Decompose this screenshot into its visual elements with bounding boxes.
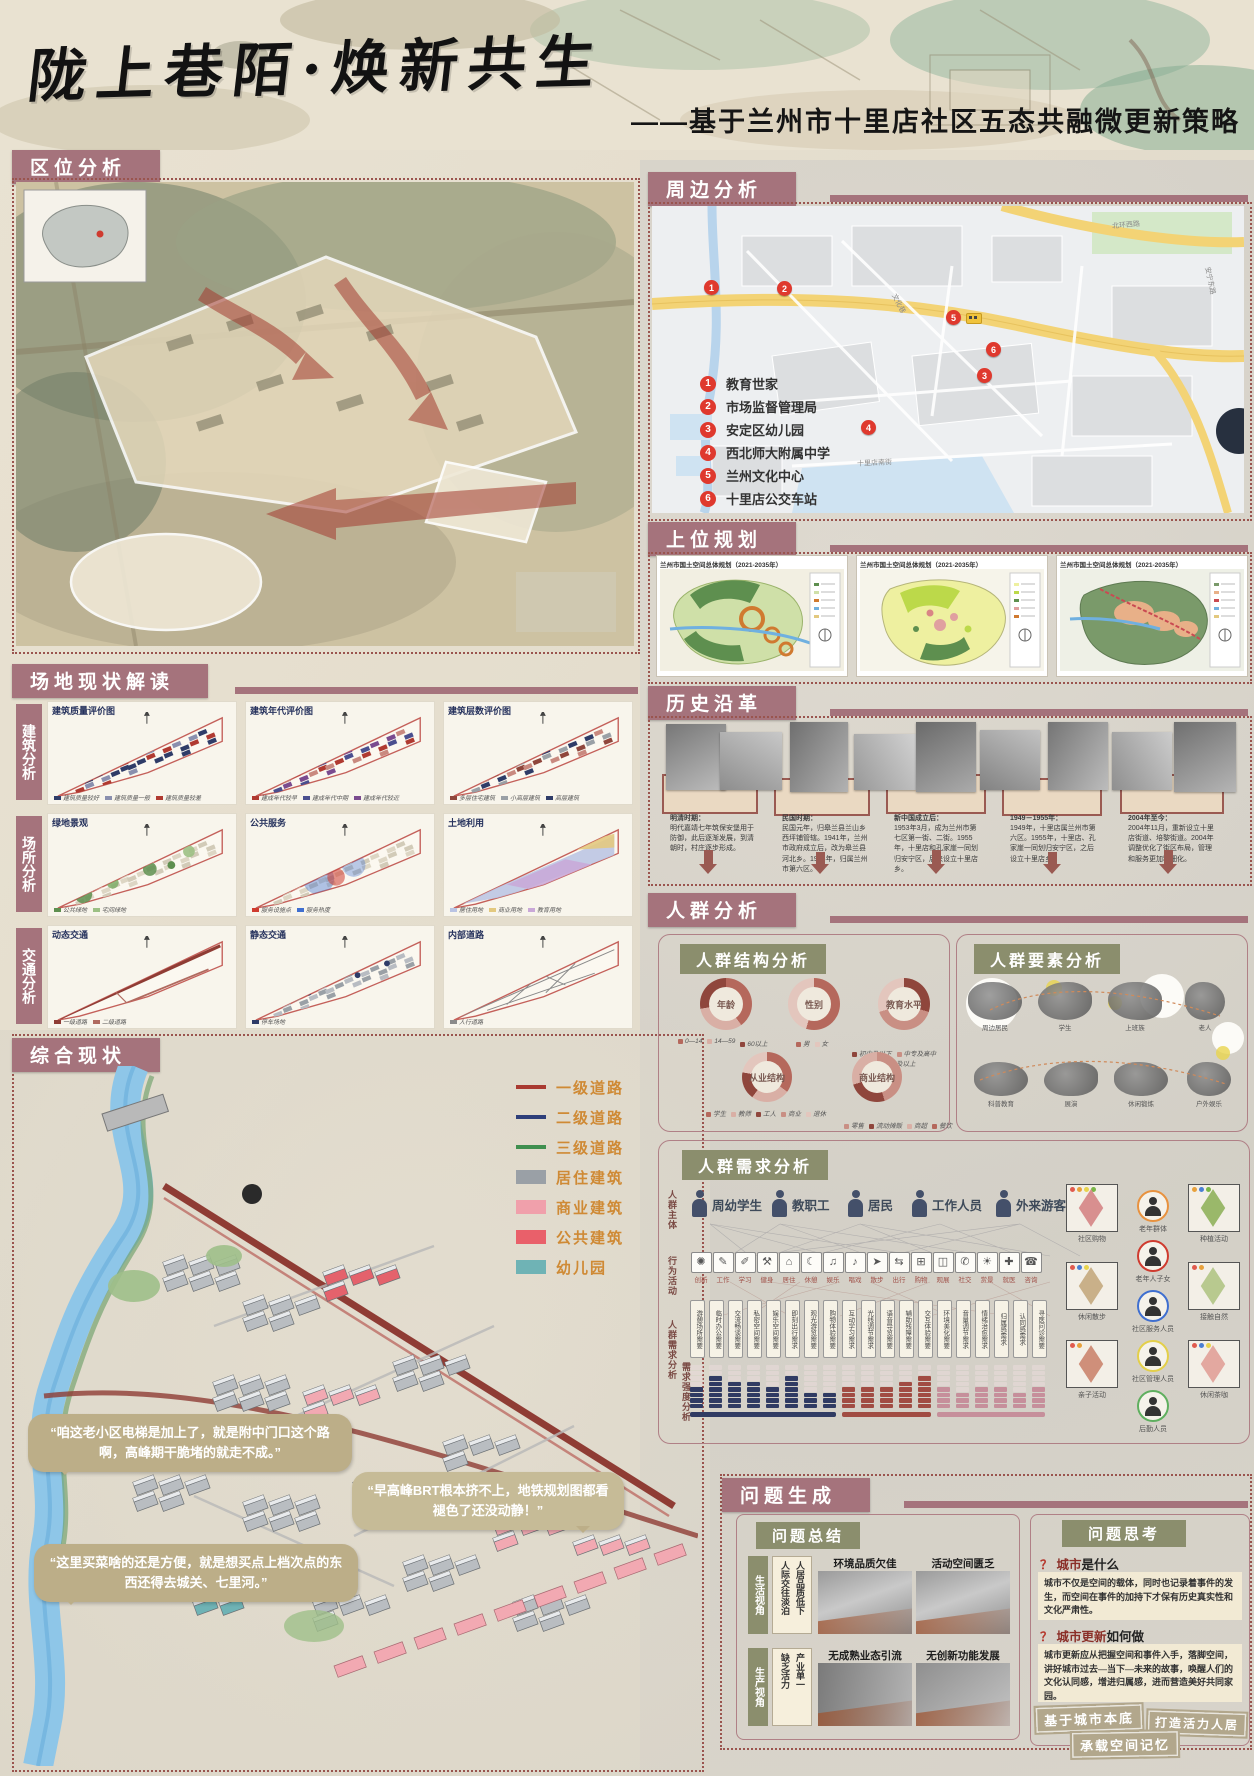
history-photo — [854, 734, 916, 790]
people-group: 上班族 — [1102, 982, 1168, 1032]
persona-circle: 老年人子女 — [1124, 1240, 1182, 1284]
activity-item: ✐学习 — [734, 1252, 756, 1284]
mini-map-static-traffic: 静态交通 停车场地 — [246, 926, 434, 1028]
legend-item: 1教育世家 — [700, 372, 830, 395]
donut-legend-age: 0—1414—5960以上 — [678, 1038, 768, 1048]
activity-icon: ✐ — [735, 1252, 756, 1273]
activity-label: 唱戏 — [844, 1274, 866, 1284]
answer-1: 城市不仅是空间的载体，同时也记录着事件的发生，而空间在事件的加持下才保有历史真实… — [1038, 1572, 1242, 1620]
subject-item: 周幼学生 — [692, 1190, 766, 1217]
intensity-bar-column — [918, 1362, 931, 1408]
scene-tile: 种植活动 — [1188, 1184, 1240, 1244]
intensity-bar-column — [899, 1362, 912, 1408]
activity-label: 娱乐 — [822, 1274, 844, 1284]
category-dot — [1077, 1343, 1082, 1348]
need-label: 观光游览需要 — [804, 1300, 819, 1358]
legend-item: 居住建筑 — [516, 1162, 666, 1192]
activity-icon: ♪ — [845, 1252, 866, 1273]
activity-label: 就医 — [998, 1274, 1020, 1284]
intensity-bar-column — [1032, 1362, 1045, 1408]
intensity-bar-column — [956, 1362, 969, 1408]
collage-accent-dot — [1216, 1046, 1230, 1060]
stamp-city-base: 基于城市本底 — [1036, 1704, 1143, 1733]
people-group: 科普教育 — [968, 1062, 1034, 1108]
section-header-problem: 问题生成 — [722, 1478, 870, 1512]
plan-map-1: 兰州市国土空间总体规划（2021-2035年） — [656, 555, 848, 677]
surroundings-street-map: 北环西路 安宁东路 文化巷 十里店南街 1 2 3 4 5 6 1教育世家 2市… — [652, 206, 1244, 513]
subheader-population-elements: 人群要素分析 — [974, 944, 1120, 974]
legend-item: 三级道路 — [516, 1132, 666, 1162]
intensity-bar-column — [1013, 1362, 1026, 1408]
header-tail — [830, 709, 1248, 716]
mini-map-building-age: 建筑年代评价图 建成年代较早建成年代中期建成年代较近 — [246, 702, 434, 804]
mini-map-legend: 建筑质量较好建筑质量一般建筑质量较差 — [54, 793, 201, 802]
need-label: 互动学习需求 — [842, 1300, 857, 1358]
section-header-history: 历史沿革 — [648, 686, 796, 720]
tag-box-life: 人际交往淡泊人居品质低下 — [772, 1556, 812, 1634]
tag-box-production: 缺乏活力产业单一 — [772, 1648, 812, 1726]
intensity-bar-column — [690, 1362, 703, 1408]
activity-icon: ➤ — [867, 1252, 888, 1273]
activity-label: 创新 — [690, 1274, 712, 1284]
angle-label-life: 生活视角 — [748, 1556, 768, 1634]
need-label: 光线调节需求 — [861, 1300, 876, 1358]
activity-label: 咨询 — [1020, 1274, 1042, 1284]
need-label: 辅助残障需要 — [899, 1300, 914, 1358]
era-text: 明清时期：明代嘉靖七年筑保安堡用于防御，此后逐渐发展，到清朝时，村庄逐步形成。 — [670, 814, 758, 855]
header-tail — [830, 545, 1248, 552]
activity-item: ⚒健身 — [756, 1252, 778, 1284]
history-photo — [916, 722, 976, 792]
intensity-bar-column — [937, 1362, 950, 1408]
legend-item: 2市场监督管理局 — [700, 395, 830, 418]
mini-map-legend: 建成年代较早建成年代中期建成年代较近 — [252, 793, 399, 802]
mini-map-building-height: 建筑层数评价图 多层住宅建筑小高层建筑高层建筑 — [444, 702, 632, 804]
category-dot — [1192, 1265, 1197, 1270]
activity-label: 休憩 — [800, 1274, 822, 1284]
activity-item: ⇆出行 — [888, 1252, 910, 1284]
category-dot — [1077, 1265, 1082, 1270]
people-group: 周边居民 — [962, 982, 1028, 1032]
person-icon — [912, 1190, 927, 1217]
category-dot — [1199, 1343, 1204, 1348]
category-dot — [1077, 1187, 1082, 1192]
history-photo — [1174, 722, 1236, 792]
activity-item: ✆社交 — [954, 1252, 976, 1284]
activity-item: ♫娱乐 — [822, 1252, 844, 1284]
mini-map-landuse: 土地利用 居住用地商业用地教育用地 — [444, 814, 632, 916]
intensity-bar-column — [880, 1362, 893, 1408]
subheader-population-demand: 人群需求分析 — [682, 1150, 828, 1180]
bus-icon — [966, 313, 982, 324]
activity-item: ◫观展 — [932, 1252, 954, 1284]
subject-item: 工作人员 — [912, 1190, 986, 1217]
section-header-population: 人群分析 — [648, 893, 796, 927]
subheader-population-structure: 人群结构分析 — [680, 944, 826, 974]
section-header-upper-planning: 上位规划 — [648, 522, 796, 556]
activity-label: 观展 — [932, 1274, 954, 1284]
map-marker-2: 2 — [777, 281, 792, 296]
activity-icon: ☀ — [977, 1252, 998, 1273]
category-dot — [1192, 1343, 1197, 1348]
intensity-bar-column — [804, 1362, 817, 1408]
activity-item: ☀赏景 — [976, 1252, 998, 1284]
donut-legend-occupation: 学生教师工人商业退休 — [706, 1108, 826, 1118]
history-photo — [1112, 732, 1172, 790]
legend-item: 4西北师大附属中学 — [700, 441, 830, 464]
people-group: 学生 — [1032, 982, 1098, 1032]
mini-map-greenery: 绿地景观 公共绿地宅间绿地 — [48, 814, 236, 916]
person-icon — [772, 1190, 787, 1217]
need-label: 语音导览需要 — [880, 1300, 895, 1358]
people-group: 休闲锻炼 — [1108, 1062, 1174, 1108]
donut-commerce: 商业结构 — [852, 1052, 902, 1102]
intensity-bar-column — [709, 1362, 722, 1408]
activity-item: ✎工作 — [712, 1252, 734, 1284]
row-label-subjects: 人群主体 — [666, 1190, 679, 1252]
activity-label: 社交 — [954, 1274, 976, 1284]
activity-item: ⌂居住 — [778, 1252, 800, 1284]
legend-item: 3安定区幼儿园 — [700, 418, 830, 441]
history-photo — [790, 722, 848, 792]
donut-age: 年龄 — [700, 978, 752, 1030]
problem-photo: 活动空间匮乏 — [916, 1556, 1010, 1634]
header-tail — [235, 687, 638, 694]
resident-quote-bubble: “早高峰BRT根本挤不上，地铁规划图都看褪色了还没动静！” — [352, 1472, 624, 1530]
persona-circle: 社区服务人员 — [1124, 1290, 1182, 1334]
timeline-arrow — [1048, 852, 1057, 864]
person-icon — [692, 1190, 707, 1217]
persona-circle: 后勤人员 — [1124, 1390, 1182, 1434]
poster: 陇上巷陌·焕新共生 ——基于兰州市十里店社区五态共融微更新策略 区位分析 — [0, 0, 1254, 1776]
need-label: 购物体验需要 — [823, 1300, 838, 1358]
need-label: 环境美化需要 — [937, 1300, 952, 1358]
header-tail — [830, 916, 1248, 923]
donut-legend-commerce: 零售流动摊贩商超餐饮 — [844, 1120, 952, 1130]
answer-2: 城市更新应从把握空间和事件入手，落脚空间，讲好城市过去—当下—未来的故事，唤醒人… — [1038, 1644, 1242, 1702]
category-dot — [1192, 1187, 1197, 1192]
scene-tile: 亲子活动 — [1066, 1340, 1118, 1400]
problem-photo: 无创新功能发展 — [916, 1648, 1010, 1726]
legend-item: 幼儿园 — [516, 1252, 666, 1282]
legend-item: 公共建筑 — [516, 1222, 666, 1252]
person-icon — [848, 1190, 863, 1217]
need-label: 娱乐空间需要 — [766, 1300, 781, 1358]
intensity-bar-column — [842, 1362, 855, 1408]
need-label: 私密空间需要 — [747, 1300, 762, 1358]
history-photo — [666, 724, 726, 790]
people-group: 户外娱乐 — [1176, 1062, 1242, 1108]
stamp-memory: 承载空间记忆 — [1072, 1731, 1178, 1758]
timeline-arrow — [704, 850, 713, 864]
need-label: 交流畅谈需要 — [728, 1300, 743, 1358]
intensity-bar-column — [975, 1362, 988, 1408]
mini-map-dynamic-traffic: 动态交通 一级道路二级道路 — [48, 926, 236, 1028]
need-label: 寻医问诊需要 — [1032, 1300, 1047, 1358]
intensity-bar-column — [861, 1362, 874, 1408]
mini-map-legend: 一级道路二级道路 — [54, 1017, 126, 1026]
activity-icon: ✎ — [713, 1252, 734, 1273]
intensity-base-bar — [690, 1412, 836, 1417]
donut-gender: 性别 — [788, 978, 840, 1030]
subject-item: 教职工 — [772, 1190, 846, 1217]
need-label: 归属感需求 — [994, 1300, 1009, 1358]
activity-item: ♪唱戏 — [844, 1252, 866, 1284]
scene-tile: 休闲茶咖 — [1188, 1340, 1240, 1400]
need-label: 临时办公需要 — [709, 1300, 724, 1358]
intensity-bar-column — [785, 1362, 798, 1408]
row-label-demands: 人群需求分析 — [666, 1320, 679, 1388]
banner: 陇上巷陌·焕新共生 ——基于兰州市十里店社区五态共融微更新策略 — [0, 0, 1254, 150]
activity-label: 赏景 — [976, 1274, 998, 1284]
row-label-building-analysis: 建筑分析 — [16, 704, 42, 800]
subject-item: 居民 — [848, 1190, 922, 1217]
legend-item: 商业建筑 — [516, 1192, 666, 1222]
activity-icon: ✺ — [691, 1252, 712, 1273]
resident-quote-bubble: “咱这老小区电梯是加上了，就是附中门口这个路啊，高峰期干脆堵的就走不成。” — [28, 1414, 352, 1472]
subject-item: 外来游客 — [996, 1190, 1070, 1217]
activity-label: 出行 — [888, 1274, 910, 1284]
history-timeline: 明清时期：明代嘉靖七年筑保安堡用于防御，此后逐渐发展，到清朝时，村庄逐步形成。 … — [650, 718, 1246, 880]
poster-subtitle: ——基于兰州市十里店社区五态共融微更新策略 — [631, 100, 1240, 139]
activity-item: ✚就医 — [998, 1252, 1020, 1284]
subheader-problem-thinking: 问题思考 — [1062, 1520, 1186, 1547]
person-icon — [996, 1190, 1011, 1217]
plan-map-title: 兰州市国土空间总体规划（2021-2035年） — [660, 559, 844, 569]
legend-item: 6十里店公交车站 — [700, 487, 830, 510]
map-marker-5: 5 — [946, 310, 961, 325]
section-header-site-status: 场地现状解读 — [12, 664, 208, 698]
donut-legend-gender: 男女 — [796, 1038, 828, 1048]
people-group: 展演 — [1038, 1062, 1104, 1108]
people-group: 老人 — [1172, 982, 1238, 1032]
mini-map-inner-roads: 内部道路 人行道路 — [444, 926, 632, 1028]
mini-map-legend: 公共绿地宅间绿地 — [54, 905, 126, 914]
category-dot — [1070, 1343, 1075, 1348]
row-label-activities: 行为活动 — [666, 1256, 679, 1318]
activity-icon: ⚒ — [757, 1252, 778, 1273]
timeline-arrow — [816, 852, 825, 864]
need-label: 情绪治愈需求 — [975, 1300, 990, 1358]
section-header-surroundings: 周边分析 — [648, 172, 796, 206]
mini-map-public-service: 公共服务 服务设施点服务热度 — [246, 814, 434, 916]
question-2: ？城市更新如何做 — [1040, 1626, 1144, 1645]
activity-label: 工作 — [712, 1274, 734, 1284]
donut-education: 教育水平 — [878, 978, 930, 1030]
activity-icon: ♫ — [823, 1252, 844, 1273]
history-photo — [980, 730, 1040, 790]
category-dot — [1199, 1187, 1204, 1192]
row-label-place-analysis: 场所分析 — [16, 816, 42, 912]
problem-photo: 环境品质欠佳 — [818, 1556, 912, 1634]
persona-circle: 老年群体 — [1124, 1190, 1182, 1234]
intensity-bar-column — [994, 1362, 1007, 1408]
map-marker-1: 1 — [704, 280, 719, 295]
legend-item: 5兰州文化中心 — [700, 464, 830, 487]
header-tail — [830, 195, 1248, 202]
angle-label-production: 生产视角 — [748, 1648, 768, 1726]
need-label: 即刻出行需求 — [785, 1300, 800, 1358]
surroundings-legend: 1教育世家 2市场监督管理局 3安定区幼儿园 4西北师大附属中学 5兰州文化中心… — [700, 372, 830, 510]
activity-icon: ⌂ — [779, 1252, 800, 1273]
scene-tile: 社区购物 — [1066, 1184, 1118, 1244]
mini-map-legend: 人行道路 — [450, 1017, 483, 1026]
legend-item: 二级道路 — [516, 1102, 666, 1132]
activity-icon: ⇆ — [889, 1252, 910, 1273]
location-satellite-map — [16, 182, 634, 646]
intensity-bar-column — [766, 1362, 779, 1408]
activity-icon: ☾ — [801, 1252, 822, 1273]
problem-photo: 无成熟业态引流 — [818, 1648, 912, 1726]
mini-map-building-quality: 建筑质量评价图 建筑质量较好建筑质量一般建筑质量较差 — [48, 702, 236, 804]
activity-label: 购物 — [910, 1274, 932, 1284]
activity-item: ✺创新 — [690, 1252, 712, 1284]
need-label: 游憩场所需要 — [690, 1300, 705, 1358]
intensity-base-bar — [937, 1412, 1045, 1417]
intensity-bar-column — [823, 1362, 836, 1408]
row-label-traffic-analysis: 交通分析 — [16, 928, 42, 1024]
intensity-base-bar — [842, 1412, 931, 1417]
map-marker-6: 6 — [986, 342, 1001, 357]
category-dot — [1199, 1265, 1204, 1270]
map-marker-3: 3 — [977, 368, 992, 383]
question-1: ？城市是什么 — [1040, 1554, 1119, 1573]
timeline-arrow — [1164, 850, 1173, 864]
mini-map-legend: 居住用地商业用地教育用地 — [450, 905, 561, 914]
activity-icon: ⊞ — [911, 1252, 932, 1273]
category-dot — [1070, 1187, 1075, 1192]
scene-tile: 休闲散步 — [1066, 1262, 1118, 1322]
activity-label: 学习 — [734, 1274, 756, 1284]
road-label: 十里店南街 — [857, 457, 892, 469]
plan-map-title: 兰州市国土空间总体规划（2021-2035年） — [860, 559, 1044, 569]
donut-occupation: 从业结构 — [742, 1052, 792, 1102]
intensity-bar-column — [747, 1362, 760, 1408]
activity-item: ☎咨询 — [1020, 1252, 1042, 1284]
header-tail — [904, 1501, 1248, 1508]
activity-icon: ✆ — [955, 1252, 976, 1273]
history-photo — [720, 732, 782, 790]
activity-item: ➤散步 — [866, 1252, 888, 1284]
legend-item: 一级道路 — [516, 1072, 666, 1102]
subheader-problem-summary: 问题总结 — [756, 1522, 860, 1549]
mini-map-legend: 多层住宅建筑小高层建筑高层建筑 — [450, 793, 579, 802]
resident-quote-bubble: “这里买菜啥的还是方便，就是想买点上档次点的东西还得去城关、七里河。” — [34, 1544, 358, 1602]
activity-label: 居住 — [778, 1274, 800, 1284]
activity-icon: ◫ — [933, 1252, 954, 1273]
activity-label: 健身 — [756, 1274, 778, 1284]
need-label: 交互体验需要 — [918, 1300, 933, 1358]
scene-tile: 接触自然 — [1188, 1262, 1240, 1322]
timeline-arrow — [932, 850, 941, 864]
history-photo — [1048, 722, 1108, 790]
overview-legend: 一级道路 二级道路 三级道路 居住建筑 商业建筑 公共建筑 幼儿园 — [516, 1072, 666, 1282]
activity-item: ⊞购物 — [910, 1252, 932, 1284]
category-dot — [1070, 1265, 1075, 1270]
plan-map-3: 兰州市国土空间总体规划（2021-2035年） — [1056, 555, 1248, 677]
plan-map-title: 兰州市国土空间总体规划（2021-2035年） — [1060, 559, 1244, 569]
intensity-bar-column — [728, 1362, 741, 1408]
activity-item: ☾休憩 — [800, 1252, 822, 1284]
activity-label: 散步 — [866, 1274, 888, 1284]
poster-title: 陇上巷陌·焕新共生 — [24, 14, 610, 113]
mini-map-legend: 服务设施点服务热度 — [252, 905, 330, 914]
map-marker-4: 4 — [861, 420, 876, 435]
activity-icon: ☎ — [1021, 1252, 1042, 1273]
need-label: 音量调节需求 — [956, 1300, 971, 1358]
need-label: 认同感需求 — [1013, 1300, 1028, 1358]
plan-map-2: 兰州市国土空间总体规划（2021-2035年） — [856, 555, 1048, 677]
activity-icon: ✚ — [999, 1252, 1020, 1273]
persona-circle: 社区管理人员 — [1124, 1340, 1182, 1384]
mini-map-legend: 停车场地 — [252, 1017, 285, 1026]
